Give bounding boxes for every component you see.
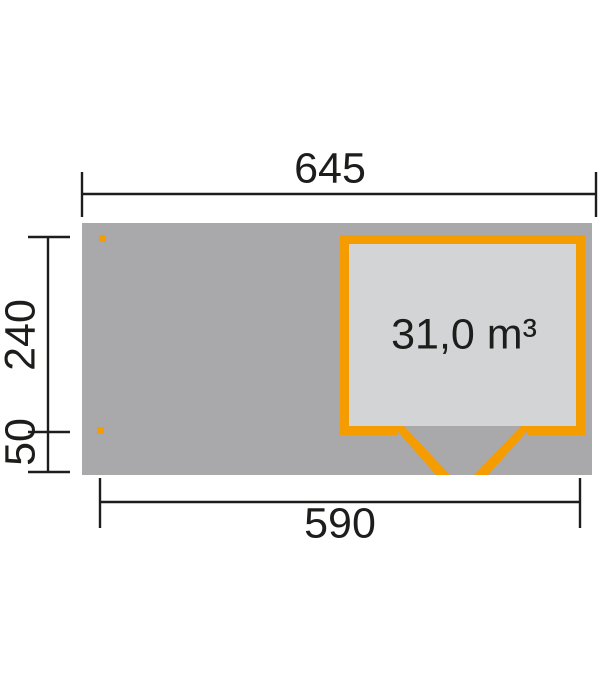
volume-label: 31,0 m³ [391, 314, 537, 357]
dimension-label-deck-front-depth: 50 [0, 418, 43, 466]
dimension-label-base-width: 590 [304, 503, 376, 546]
dimension-label-house-depth: 240 [0, 299, 43, 371]
dimension-label-total-width: 645 [294, 148, 366, 191]
door-opening [398, 426, 527, 436]
post-marker-top [99, 235, 106, 242]
post-marker-bottom [97, 427, 104, 434]
floorplan-diagram: 645 240 50 590 31,0 m³ [0, 0, 600, 700]
